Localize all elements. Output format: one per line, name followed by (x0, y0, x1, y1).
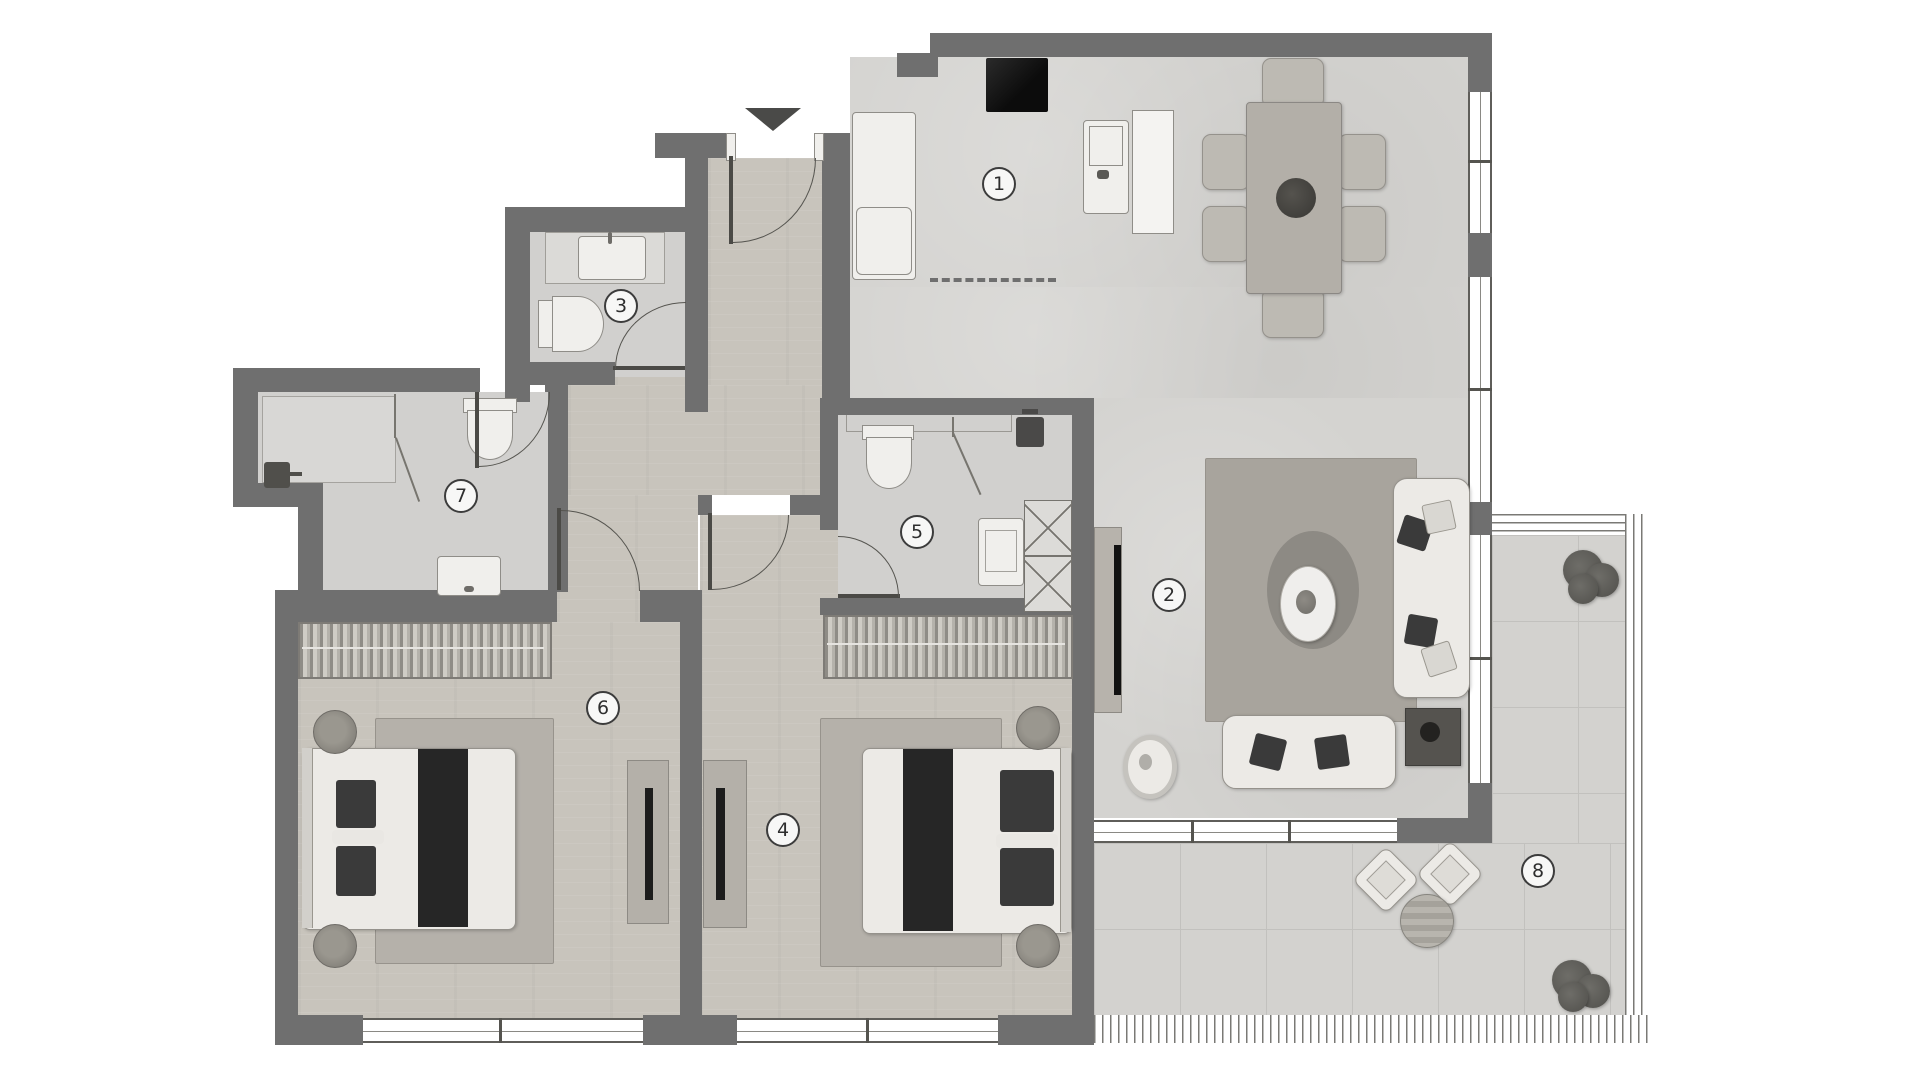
sofa-pillow (1421, 499, 1457, 535)
bed-pillow (336, 780, 376, 828)
toilet-icon (552, 296, 604, 352)
floor-bathroom-7 (320, 483, 548, 600)
kitchen-appliance (856, 207, 912, 275)
sofa (1222, 715, 1396, 789)
wall (275, 590, 557, 622)
wall (640, 590, 685, 622)
bed-pillow (1000, 770, 1054, 832)
dining-chair (1262, 58, 1324, 108)
wall (930, 33, 1492, 57)
bed-fold (332, 830, 384, 844)
wall (822, 133, 850, 415)
kitchen-island (1132, 110, 1174, 234)
bath3-sink (578, 236, 646, 280)
dining-chair (1338, 134, 1386, 190)
tv-icon (1114, 545, 1121, 695)
wall (1468, 40, 1492, 92)
dining-chair (1338, 206, 1386, 262)
bed-headboard (302, 748, 313, 928)
wall (820, 415, 838, 530)
wardrobe (298, 622, 552, 679)
shower-pipe (290, 472, 302, 476)
window (1094, 820, 1397, 843)
kitchen-faucet-icon (1097, 170, 1109, 179)
bed-pillow (1000, 848, 1054, 906)
wall (643, 1015, 737, 1045)
water-heater-bracket (1022, 409, 1038, 414)
plant-icon (1568, 574, 1598, 604)
room-label-terrace: 8 (1521, 854, 1555, 888)
side-table-decor (1420, 722, 1440, 742)
wall (1072, 398, 1094, 1043)
bed-headboard (1060, 748, 1071, 932)
wall (820, 398, 1094, 415)
wall (545, 368, 568, 392)
room-label-bath5: 5 (900, 515, 934, 549)
floor-lamp-base (1139, 754, 1152, 770)
shower-glass (394, 394, 396, 438)
window-mullion (1288, 820, 1291, 843)
wall (1397, 818, 1492, 843)
window-mullion (499, 1018, 502, 1043)
wall (655, 133, 733, 158)
wall (698, 495, 712, 515)
nightstand (1016, 706, 1060, 750)
wall (505, 207, 690, 232)
entry-door-opening (733, 133, 817, 158)
wardrobe (823, 615, 1073, 679)
wall (790, 495, 822, 515)
wardrobe-rail (302, 647, 544, 649)
sofa-pillow (1404, 614, 1439, 649)
terrace-railing-bottom (1094, 1015, 1648, 1043)
wall (1468, 502, 1492, 535)
table-centerpiece (1276, 178, 1316, 218)
bed-runner (903, 749, 953, 931)
dining-chair (1202, 206, 1250, 262)
nightstand (313, 710, 357, 754)
nightstand (313, 924, 357, 968)
wall (897, 53, 938, 77)
wardrobe-rail (827, 643, 1065, 645)
room-label-bedroom6: 6 (586, 691, 620, 725)
room-label-bath3: 3 (604, 289, 638, 323)
kitchen-counter-dashed-line (930, 278, 1056, 282)
coffee-table-decor (1296, 590, 1316, 614)
entry-arrow-icon (745, 108, 801, 131)
dining-chair (1262, 288, 1324, 338)
wall (275, 600, 298, 1045)
wall (998, 1015, 1094, 1045)
wall (1468, 233, 1492, 277)
room-label-bedroom4: 4 (766, 813, 800, 847)
entry-door-frame (814, 133, 824, 161)
tv-icon (645, 788, 653, 900)
plant-icon (1558, 982, 1588, 1012)
tv-console (703, 760, 747, 928)
shower-head-icon (264, 462, 290, 488)
bath7-faucet-icon (464, 586, 474, 592)
bath3-faucet-icon (608, 232, 612, 244)
room-label-living: 2 (1152, 578, 1186, 612)
bed-runner (418, 749, 468, 927)
kitchen-sink-basin (1089, 126, 1123, 166)
terrace-table (1400, 894, 1454, 948)
tv-icon (716, 788, 725, 900)
window-mullion (1468, 657, 1492, 660)
linen-closet (1024, 500, 1072, 556)
nightstand (1016, 924, 1060, 968)
window-mullion (1191, 820, 1194, 843)
linen-closet (1024, 556, 1072, 612)
bed-pillow (336, 846, 376, 896)
wall (685, 158, 708, 412)
bath5-sink-basin (985, 530, 1017, 572)
toilet-icon (866, 437, 912, 489)
dining-chair (1202, 134, 1250, 190)
room-label-bath7: 7 (444, 479, 478, 513)
water-heater-icon (1016, 417, 1044, 447)
window-mullion (1468, 388, 1492, 391)
floor-plan: 1 2 3 7 (0, 0, 1920, 1080)
window (363, 1018, 643, 1043)
wall (1468, 783, 1492, 820)
wall (680, 590, 702, 1018)
window-mullion (866, 1018, 869, 1043)
wall (233, 368, 480, 392)
sofa-pillow (1314, 734, 1350, 770)
room-label-kitchen: 1 (982, 167, 1016, 201)
terrace-railing-right (1625, 514, 1648, 1043)
floor-living-upper (850, 287, 1468, 398)
stove-icon (986, 58, 1048, 112)
bed-fold (996, 834, 1058, 848)
window-mullion (1468, 160, 1492, 163)
wall (275, 1015, 363, 1045)
